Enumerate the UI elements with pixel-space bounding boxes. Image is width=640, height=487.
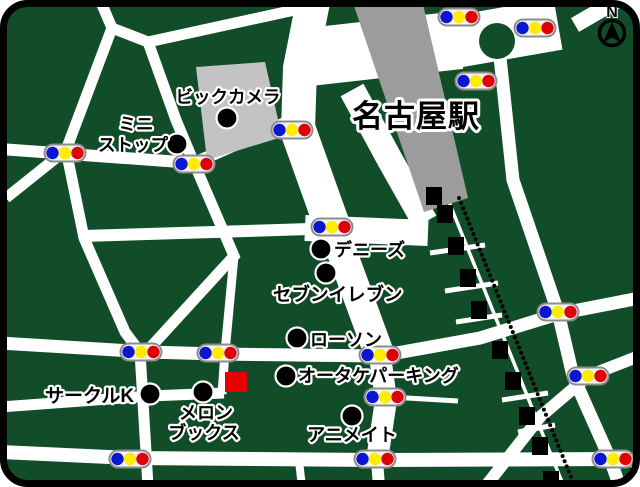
railway-dot xyxy=(511,330,515,334)
signal-red-light xyxy=(619,453,631,465)
railway-dot xyxy=(565,464,569,468)
signal-blue-light xyxy=(440,11,452,23)
landmark-dot xyxy=(311,239,332,260)
railway-dot xyxy=(517,346,521,350)
signal-yellow-light xyxy=(552,306,564,318)
railway-dot xyxy=(476,242,480,246)
railway-dot xyxy=(459,201,463,205)
traffic-signal xyxy=(198,345,239,362)
signal-blue-light xyxy=(366,391,378,403)
railway-dash xyxy=(492,341,508,359)
railway-dash xyxy=(437,205,453,223)
landmark-dot xyxy=(287,328,308,349)
railway-dot xyxy=(546,418,550,422)
railway-dot xyxy=(478,248,482,252)
signal-blue-light xyxy=(122,346,134,358)
railway-dot xyxy=(494,289,498,293)
traffic-signal xyxy=(439,9,480,26)
landmark-label: ローソン xyxy=(310,330,382,350)
signal-red-light xyxy=(338,221,350,233)
railway-dot xyxy=(490,279,494,283)
signal-blue-light xyxy=(516,22,528,34)
railway-dot xyxy=(482,258,486,262)
railway-dot xyxy=(465,217,469,221)
railway-dot xyxy=(505,315,509,319)
signal-yellow-light xyxy=(212,347,224,359)
signal-blue-light xyxy=(539,306,551,318)
traffic-signal xyxy=(593,451,634,468)
railway-dot xyxy=(552,433,556,437)
railway-dot xyxy=(507,320,511,324)
railway-dot xyxy=(561,454,565,458)
railway-dot xyxy=(536,392,540,396)
signal-red-light xyxy=(71,147,83,159)
signal-blue-light xyxy=(273,124,285,136)
landmark-dennys: デニーズ xyxy=(311,239,406,261)
landmark-lawson: ローソン xyxy=(287,328,383,351)
signal-red-light xyxy=(147,346,159,358)
railway-dot xyxy=(548,423,552,427)
signal-yellow-light xyxy=(529,22,541,34)
railway-dot xyxy=(484,263,488,267)
landmark-dot xyxy=(140,384,161,405)
landmark-label: オータケパーキング xyxy=(298,365,459,386)
landmark-otake-parking: オータケパーキング xyxy=(276,365,459,387)
map-canvas: ビックカメラミニストップデニーズセブンイレブンローソンオータケパーキングサークル… xyxy=(0,0,640,487)
railway-dot xyxy=(503,310,507,314)
signal-yellow-light xyxy=(326,221,338,233)
signal-red-light xyxy=(200,158,212,170)
signal-yellow-light xyxy=(124,453,136,465)
railway-dot xyxy=(530,377,534,381)
railway-dot xyxy=(480,253,484,257)
signal-red-light xyxy=(386,349,398,361)
railway-dash xyxy=(519,407,535,425)
traffic-signal xyxy=(515,20,556,37)
railway-dot xyxy=(567,470,571,474)
railway-dot xyxy=(540,402,544,406)
railway-dot xyxy=(519,351,523,355)
signal-red-light xyxy=(541,22,553,34)
signal-blue-light xyxy=(569,370,581,382)
signal-red-light xyxy=(594,370,606,382)
traffic-signal xyxy=(174,156,215,173)
railway-dot xyxy=(492,284,496,288)
signal-blue-light xyxy=(356,453,368,465)
railway-dot xyxy=(569,475,573,479)
signal-blue-light xyxy=(594,453,606,465)
signal-yellow-light xyxy=(607,453,619,465)
signal-yellow-light xyxy=(470,75,482,87)
signal-yellow-light xyxy=(59,147,71,159)
landmark-label: ストップ xyxy=(98,135,168,155)
signal-yellow-light xyxy=(369,453,381,465)
railway-dot xyxy=(463,211,467,215)
signal-blue-light xyxy=(199,347,211,359)
traffic-signal xyxy=(110,451,151,468)
signal-red-light xyxy=(482,75,494,87)
railway-dot xyxy=(525,366,529,370)
railway-dot xyxy=(469,227,473,231)
signal-yellow-light xyxy=(379,391,391,403)
traffic-signal xyxy=(45,145,86,162)
signal-red-light xyxy=(136,453,148,465)
signal-yellow-light xyxy=(582,370,594,382)
signal-yellow-light xyxy=(286,124,298,136)
railway-dot xyxy=(513,335,517,339)
traffic-signal xyxy=(456,73,497,90)
signal-red-light xyxy=(465,11,477,23)
signal-yellow-light xyxy=(453,11,465,23)
signal-yellow-light xyxy=(188,158,200,170)
landmark-dot xyxy=(167,134,188,155)
railway-dot xyxy=(534,387,538,391)
signal-yellow-light xyxy=(374,349,386,361)
landmark-label: サークルK xyxy=(45,385,134,407)
landmark-label: ミニ xyxy=(119,114,154,134)
railway-dot xyxy=(544,413,548,417)
signal-blue-light xyxy=(46,147,58,159)
landmark-label: アニメイト xyxy=(307,425,397,445)
traffic-signal xyxy=(312,219,353,236)
traffic-signal xyxy=(538,304,579,321)
railway-dot xyxy=(474,237,478,241)
signal-blue-light xyxy=(111,453,123,465)
railway-dot xyxy=(554,439,558,443)
railway-dot xyxy=(556,444,560,448)
railway-dot xyxy=(550,428,554,432)
railway-dot xyxy=(496,294,500,298)
station-roundabout-island xyxy=(479,23,515,59)
railway-dot xyxy=(461,206,465,210)
landmark-label: メロン xyxy=(179,403,233,423)
railway-dot xyxy=(472,232,476,236)
traffic-signal xyxy=(121,344,162,361)
railway-dot xyxy=(515,341,519,345)
railway-dot xyxy=(542,408,546,412)
signal-blue-light xyxy=(361,349,373,361)
railway-dot xyxy=(488,273,492,277)
signal-blue-light xyxy=(175,158,187,170)
railway-dot xyxy=(521,356,525,360)
railway-dot xyxy=(563,459,567,463)
landmark-dot xyxy=(316,263,337,284)
signal-blue-light xyxy=(313,221,325,233)
traffic-signal xyxy=(272,122,313,139)
landmark-label: セブンイレブン xyxy=(273,284,403,305)
landmark-dot xyxy=(193,382,214,403)
railway-dot xyxy=(498,299,502,303)
landmark-dot xyxy=(217,108,238,129)
landmark-dot xyxy=(276,366,297,387)
railway-dot xyxy=(501,304,505,308)
landmark-label: ブックス xyxy=(168,422,239,443)
signal-red-light xyxy=(224,347,236,359)
signal-blue-light xyxy=(457,75,469,87)
railway-dash xyxy=(448,237,464,255)
destination-marker xyxy=(225,372,247,392)
railway-dot xyxy=(559,449,563,453)
traffic-signal xyxy=(568,368,609,385)
traffic-signal xyxy=(365,389,406,406)
railway-dot xyxy=(538,397,542,401)
landmark-label: デニーズ xyxy=(334,239,405,260)
railway-dash xyxy=(532,437,548,455)
station-label: 名古屋駅 xyxy=(352,99,480,134)
traffic-signal xyxy=(355,451,396,468)
road xyxy=(83,229,310,236)
railway-dash xyxy=(426,187,442,205)
railway-dot xyxy=(523,361,527,365)
map-content: ビックカメラミニストップデニーズセブンイレブンローソンオータケパーキングサークル… xyxy=(0,0,640,487)
signal-red-light xyxy=(298,124,310,136)
railway-dot xyxy=(532,382,536,386)
landmark-dot xyxy=(342,406,363,427)
railway-dot xyxy=(509,325,513,329)
railway-dash xyxy=(460,269,476,287)
signal-yellow-light xyxy=(135,346,147,358)
railway-dot xyxy=(467,222,471,226)
railway-dot xyxy=(457,196,461,200)
railway-dash xyxy=(471,301,487,319)
railway-dot xyxy=(527,371,531,375)
signal-red-light xyxy=(564,306,576,318)
railway-dash xyxy=(505,372,521,390)
signal-red-light xyxy=(391,391,403,403)
city-map: ビックカメラミニストップデニーズセブンイレブンローソンオータケパーキングサークル… xyxy=(0,0,640,487)
signal-red-light xyxy=(381,453,393,465)
railway-dot xyxy=(486,268,490,272)
landmark-label: ビックカメラ xyxy=(176,87,281,107)
